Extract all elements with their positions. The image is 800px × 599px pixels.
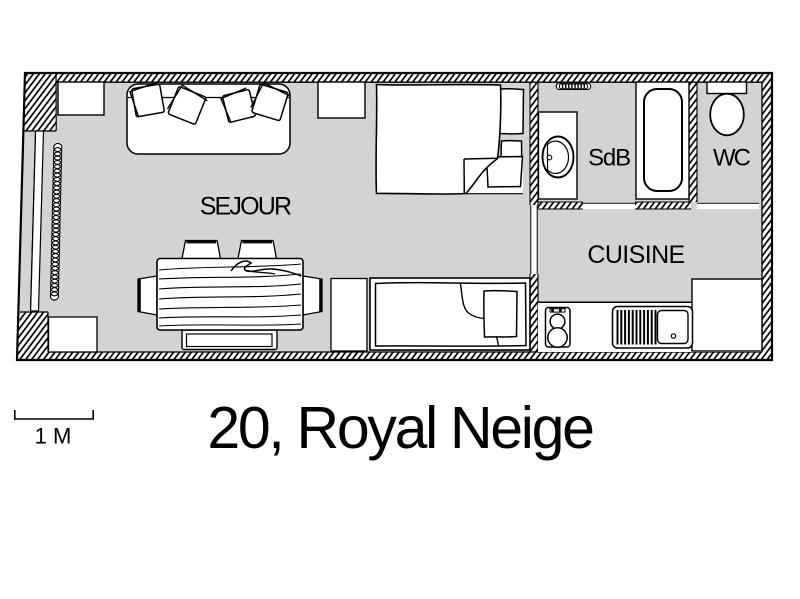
svg-text:1 M: 1 M: [35, 424, 72, 449]
svg-text:WC: WC: [713, 145, 751, 172]
svg-text:SEJOUR: SEJOUR: [200, 193, 291, 221]
svg-text:20, Royal Neige: 20, Royal Neige: [207, 395, 593, 461]
svg-text:CUISINE: CUISINE: [587, 241, 684, 269]
svg-text:SdB: SdB: [588, 145, 630, 172]
